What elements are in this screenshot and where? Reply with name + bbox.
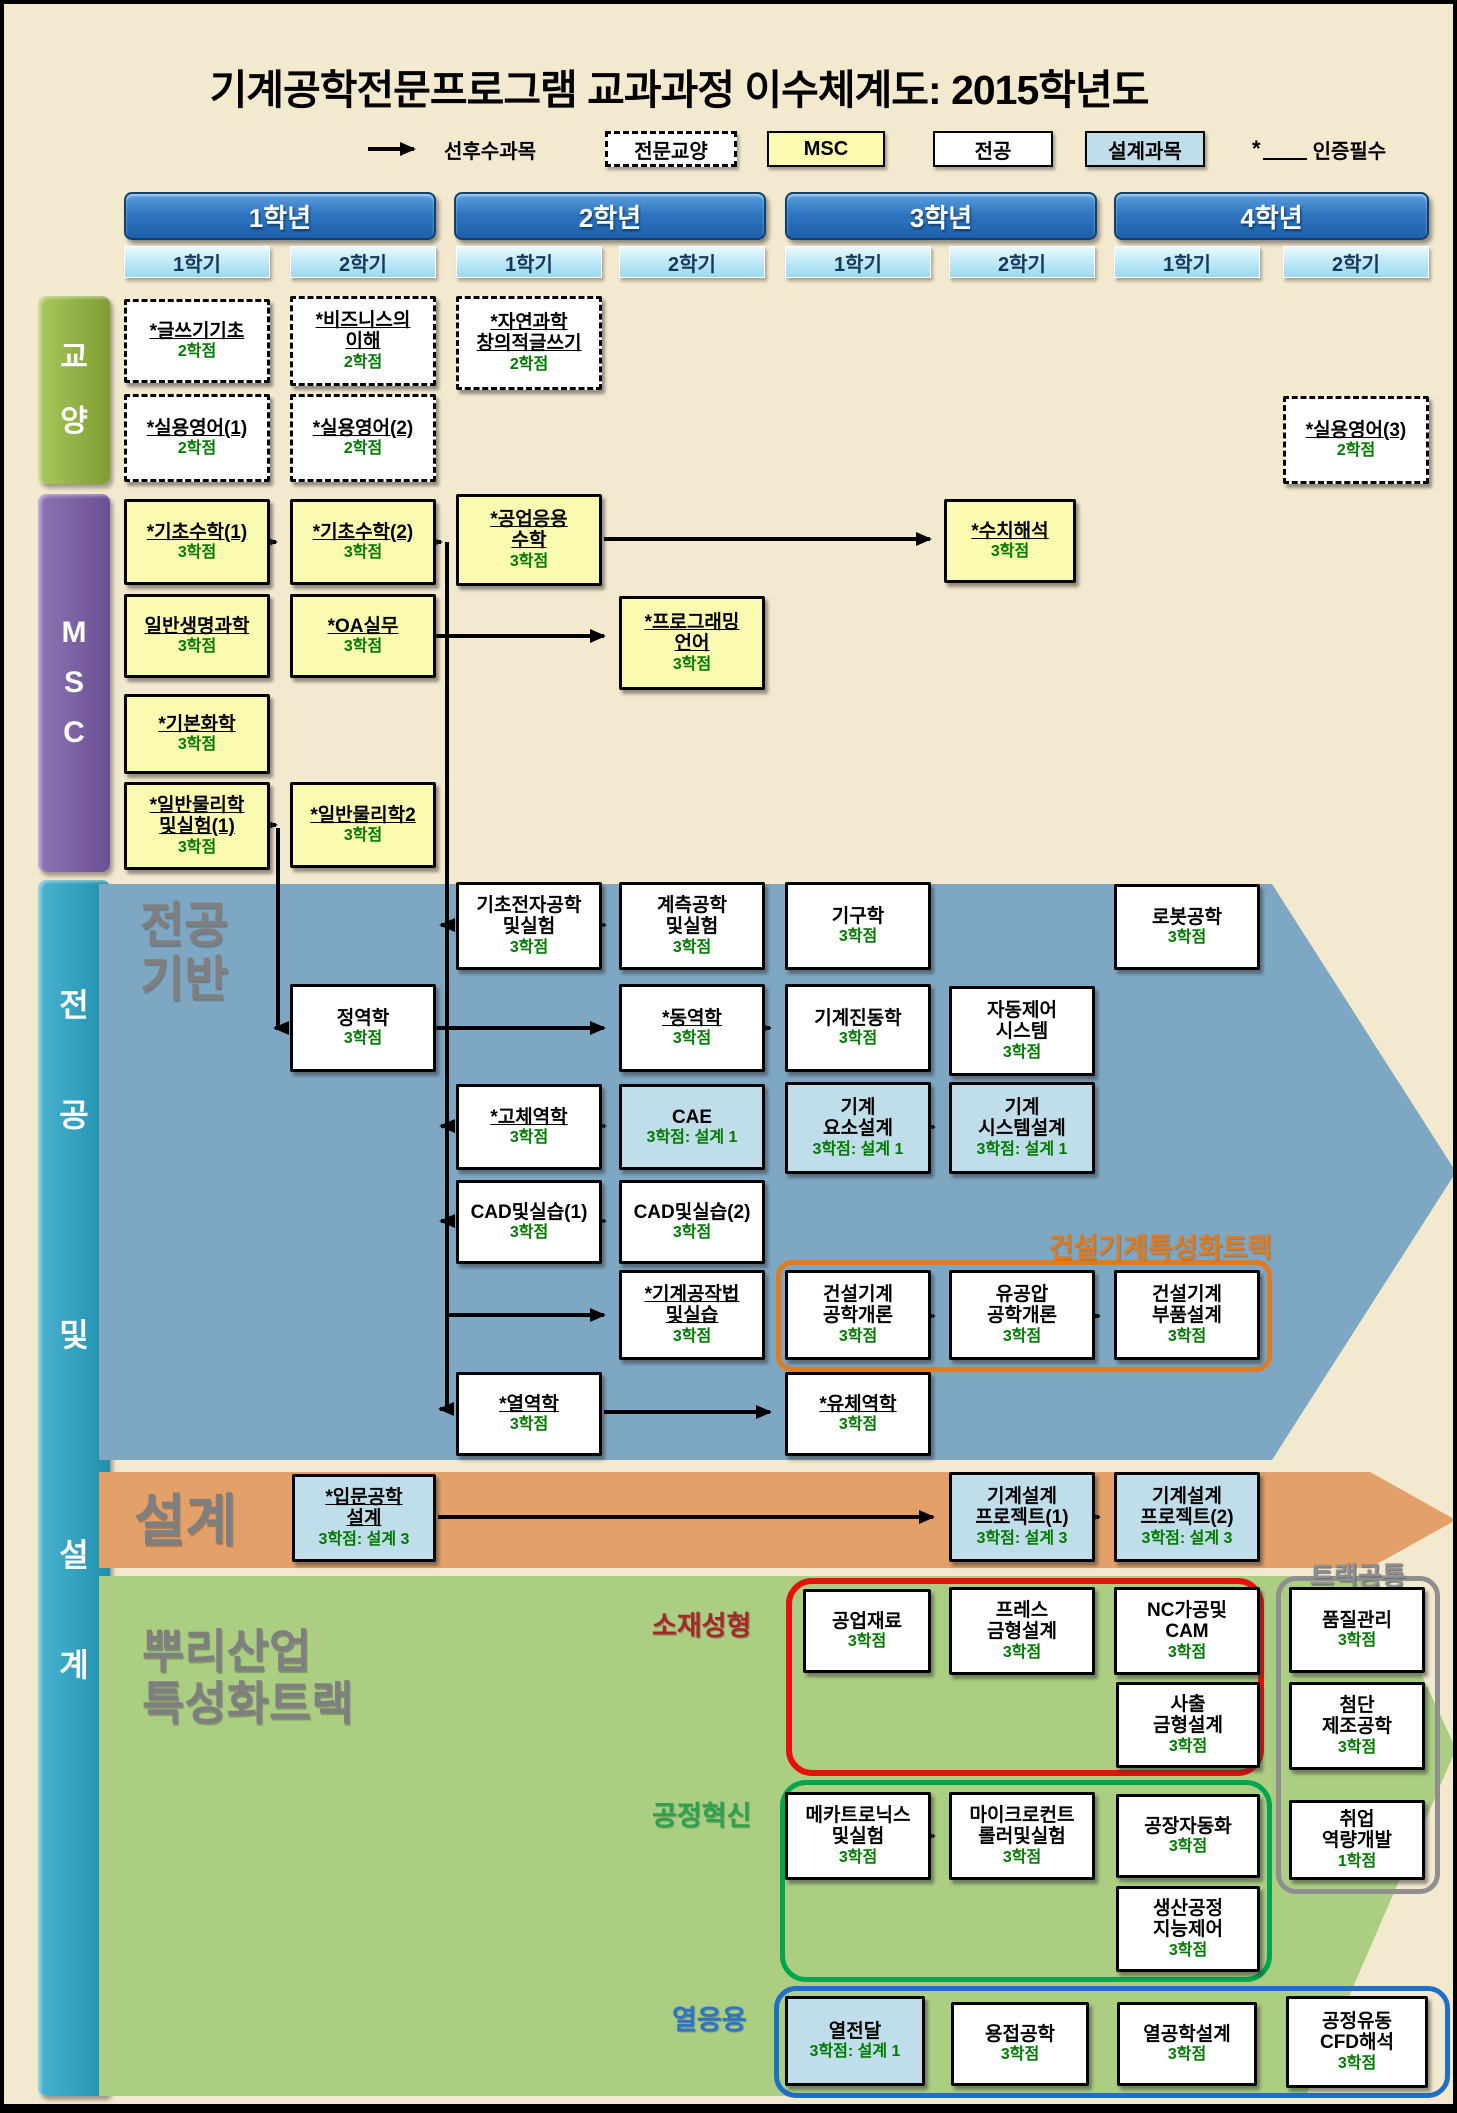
course-box-construction-machinery-parts: 건설기계 부품설계3학점 bbox=[1114, 1270, 1260, 1360]
course-credit: 3학점 bbox=[1003, 1327, 1041, 1346]
course-title: *기계공작법 및실습 bbox=[645, 1284, 740, 1327]
course-box-mechatronics-lab: 메카트로닉스 및실험3학점 bbox=[785, 1792, 931, 1880]
legend-design-course: 설계과목 bbox=[1085, 131, 1205, 167]
year-header-4: 4학년 bbox=[1114, 192, 1429, 240]
course-credit: 3학점: 설계 1 bbox=[813, 1140, 904, 1159]
course-title: 기계설계 프로젝트(2) bbox=[1140, 1486, 1233, 1529]
course-box-robotics: 로봇공학3학점 bbox=[1114, 884, 1260, 970]
course-title: *OA실무 bbox=[328, 616, 399, 637]
semester-header-2-1: 1학기 bbox=[456, 246, 602, 278]
course-credit: 3학점 bbox=[673, 1327, 711, 1346]
course-title: 공장자동화 bbox=[1144, 1816, 1231, 1837]
course-credit: 3학점 bbox=[1168, 928, 1206, 947]
course-credit: 3학점 bbox=[839, 1848, 877, 1867]
year-header-1: 1학년 bbox=[124, 192, 436, 240]
course-title: 취업 역량개발 bbox=[1322, 1809, 1392, 1852]
course-credit: 3학점 bbox=[839, 1029, 877, 1048]
course-title: 기계진동학 bbox=[814, 1008, 901, 1029]
course-title: *자연과학 창의적글쓰기 bbox=[477, 312, 582, 355]
course-box-intro-engineering-design: *입문공학 설계3학점: 설계 3 bbox=[292, 1474, 436, 1562]
course-box-mechanisms: 기구학3학점 bbox=[785, 882, 931, 970]
course-credit: 3학점: 설계 1 bbox=[810, 2042, 901, 2061]
semester-header-3-2: 2학기 bbox=[949, 246, 1095, 278]
legend-required-label: 인증필수 bbox=[1313, 135, 1387, 164]
course-title: CAE bbox=[672, 1107, 712, 1128]
course-title: *유체역학 bbox=[819, 1394, 896, 1415]
course-credit: 2학점 bbox=[178, 342, 216, 361]
course-credit: 3학점 bbox=[848, 1632, 886, 1651]
course-title: 기계 시스템설계 bbox=[978, 1097, 1065, 1140]
course-title: *공업응용 수학 bbox=[490, 509, 567, 552]
underline-icon bbox=[1263, 138, 1307, 160]
course-credit: 3학점 bbox=[178, 735, 216, 754]
course-title: 열공학설계 bbox=[1143, 2024, 1230, 2045]
sidebar-general-education: 교 양 bbox=[38, 296, 110, 484]
course-title: 프레스 금형설계 bbox=[987, 1600, 1057, 1643]
course-title: 공정유동 CFD해석 bbox=[1320, 2011, 1394, 2054]
course-credit: 3학점 bbox=[839, 1415, 877, 1434]
course-box-dynamics: *동역학3학점 bbox=[619, 984, 765, 1072]
course-box-oa-practice: *OA실무3학점 bbox=[290, 594, 436, 678]
course-title: 유공압 공학개론 bbox=[987, 1284, 1057, 1327]
course-title: *열역학 bbox=[499, 1394, 559, 1415]
semester-header-4-1: 1학기 bbox=[1114, 246, 1260, 278]
course-box-heat-transfer: 열전달3학점: 설계 1 bbox=[785, 1996, 925, 2086]
course-title: NC가공및 CAM bbox=[1147, 1600, 1227, 1643]
course-box-cad-practice-2: CAD및실습(2)3학점 bbox=[619, 1180, 765, 1264]
course-box-thermal-engineering-design: 열공학설계3학점 bbox=[1117, 2002, 1257, 2086]
course-box-production-intelligent-control: 생산공정 지능제어3학점 bbox=[1116, 1886, 1260, 1972]
course-credit: 3학점 bbox=[1169, 1837, 1207, 1856]
course-box-machine-element-design: 기계 요소설계3학점: 설계 1 bbox=[785, 1082, 931, 1174]
course-credit: 3학점 bbox=[510, 1415, 548, 1434]
course-title: *일반물리학2 bbox=[310, 805, 415, 826]
page-title: 기계공학전문프로그램 교과과정 이수체계도: 2015학년도 bbox=[64, 56, 1294, 116]
course-box-practical-english-2: *실용영어(2)2학점 bbox=[290, 394, 436, 482]
course-title: *기초수학(2) bbox=[313, 522, 414, 543]
course-box-process-flow-cfd: 공정유동 CFD해석3학점 bbox=[1286, 1996, 1428, 2088]
course-credit: 3학점 bbox=[1168, 1327, 1206, 1346]
course-box-fluid-mechanics: *유체역학3학점 bbox=[785, 1372, 931, 1456]
semester-header-3-1: 1학기 bbox=[785, 246, 931, 278]
course-title: *동역학 bbox=[662, 1008, 722, 1029]
thermal-application-label: 열응용 bbox=[672, 1998, 747, 2037]
course-credit: 3학점 bbox=[673, 938, 711, 957]
course-credit: 3학점 bbox=[1001, 2045, 1039, 2064]
legend-major: 전공 bbox=[933, 131, 1053, 167]
course-box-cae: CAE3학점: 설계 1 bbox=[619, 1084, 765, 1170]
course-credit: 3학점 bbox=[673, 1223, 711, 1242]
course-credit: 3학점 bbox=[344, 637, 382, 656]
course-credit: 3학점 bbox=[1168, 2045, 1206, 2064]
course-title: 첨단 제조공학 bbox=[1322, 1695, 1392, 1738]
course-title: 마이크로컨트 롤러및실험 bbox=[970, 1805, 1075, 1848]
legend-msc: MSC bbox=[767, 131, 885, 167]
course-credit: 3학점: 설계 3 bbox=[319, 1530, 410, 1549]
semester-header-1-1: 1학기 bbox=[124, 246, 270, 278]
course-box-business-understanding: *비즈니스의 이해2학점 bbox=[290, 296, 436, 386]
course-title: 생산공정 지능제어 bbox=[1153, 1898, 1223, 1941]
course-credit: 3학점 bbox=[344, 543, 382, 562]
prerequisite-arrow-icon bbox=[366, 137, 432, 161]
course-title: *기본화학 bbox=[158, 714, 235, 735]
course-title: 품질관리 bbox=[1322, 1610, 1392, 1631]
course-box-statics: 정역학3학점 bbox=[290, 984, 436, 1072]
course-title: 공업재료 bbox=[832, 1611, 902, 1632]
course-title: *입문공학 설계 bbox=[325, 1487, 402, 1530]
course-title: *비즈니스의 이해 bbox=[316, 310, 411, 353]
course-title: *일반물리학 및실험(1) bbox=[150, 795, 245, 838]
course-box-hydraulic-pneumatic-intro: 유공압 공학개론3학점 bbox=[949, 1270, 1095, 1360]
course-credit: 3학점 bbox=[1169, 1737, 1207, 1756]
course-credit: 3학점 bbox=[673, 1029, 711, 1048]
course-credit: 2학점 bbox=[344, 439, 382, 458]
legend-certification-required: * 인증필수 bbox=[1252, 131, 1386, 167]
course-box-numerical-analysis: *수치해석3학점 bbox=[944, 499, 1076, 583]
course-title: *수치해석 bbox=[971, 521, 1048, 542]
course-title: 메카트로닉스 및실험 bbox=[806, 1805, 911, 1848]
material-forming-label: 소재성형 bbox=[652, 1604, 751, 1643]
design-label: 설계 bbox=[134, 1490, 237, 1553]
course-title: 일반생명과학 bbox=[145, 616, 250, 637]
course-credit: 3학점 bbox=[1168, 1643, 1206, 1662]
course-box-injection-mold-design: 사출 금형설계3학점 bbox=[1116, 1682, 1260, 1768]
course-credit: 3학점 bbox=[1338, 1631, 1376, 1650]
course-credit: 3학점 bbox=[1003, 1043, 1041, 1062]
course-title: CAD및실습(2) bbox=[634, 1202, 751, 1223]
course-title: *프로그래밍 언어 bbox=[645, 612, 740, 655]
course-box-mechanical-vibrations: 기계진동학3학점 bbox=[785, 984, 931, 1072]
course-box-solid-mechanics: *고체역학3학점 bbox=[456, 1084, 602, 1170]
course-credit: 3학점 bbox=[839, 1327, 877, 1346]
course-title: *글쓰기기초 bbox=[150, 321, 245, 342]
course-credit: 2학점 bbox=[344, 353, 382, 372]
course-box-automatic-control-systems: 자동제어 시스템3학점 bbox=[949, 986, 1095, 1076]
course-box-practical-english-3: *실용영어(3)2학점 bbox=[1283, 396, 1429, 484]
course-box-programming-language: *프로그래밍 언어3학점 bbox=[619, 596, 765, 690]
course-title: 기계설계 프로젝트(1) bbox=[975, 1486, 1068, 1529]
course-credit: 3학점 bbox=[1338, 1738, 1376, 1757]
course-title: 정역학 bbox=[337, 1008, 389, 1029]
course-title: 기초전자공학 및실험 bbox=[477, 895, 582, 938]
course-credit: 3학점 bbox=[991, 542, 1029, 561]
course-box-basic-math-1: *기초수학(1)3학점 bbox=[124, 499, 270, 585]
year-header-3: 3학년 bbox=[785, 192, 1097, 240]
course-box-nc-machining-cam: NC가공및 CAM3학점 bbox=[1114, 1587, 1260, 1675]
course-box-cad-practice-1: CAD및실습(1)3학점 bbox=[456, 1180, 602, 1264]
course-box-advanced-manufacturing: 첨단 제조공학3학점 bbox=[1289, 1682, 1425, 1770]
root-industry-track-label: 뿌리산업 특성화트랙 bbox=[142, 1626, 354, 1729]
course-title: 기계 요소설계 bbox=[823, 1097, 893, 1140]
course-title: 용접공학 bbox=[985, 2024, 1055, 2045]
course-credit: 3학점: 설계 3 bbox=[1142, 1529, 1233, 1548]
course-credit: 3학점 bbox=[178, 838, 216, 857]
course-credit: 2학점 bbox=[178, 439, 216, 458]
course-box-thermodynamics: *열역학3학점 bbox=[456, 1372, 602, 1456]
course-box-basic-chemistry: *기본화학3학점 bbox=[124, 694, 270, 774]
course-credit: 3학점 bbox=[344, 826, 382, 845]
course-credit: 3학점: 설계 3 bbox=[977, 1529, 1068, 1548]
course-box-general-physics-lab-1: *일반물리학 및실험(1)3학점 bbox=[124, 782, 270, 870]
curriculum-flowchart: 기계공학전문프로그램 교과과정 이수체계도: 2015학년도 선후수과목 전문교… bbox=[0, 0, 1457, 2113]
sidebar-msc-label: M S C bbox=[62, 608, 87, 758]
legend-prerequisite-label: 선후수과목 bbox=[444, 131, 536, 167]
course-title: CAD및실습(1) bbox=[471, 1202, 588, 1223]
course-box-practical-english-1: *실용영어(1)2학점 bbox=[124, 394, 270, 482]
course-title: *고체역학 bbox=[490, 1107, 567, 1128]
major-foundation-label: 전공 기반 bbox=[140, 899, 228, 1007]
course-credit: 3학점 bbox=[510, 1128, 548, 1147]
course-box-general-physics-2: *일반물리학23학점 bbox=[290, 782, 436, 868]
course-box-writing-basics: *글쓰기기초2학점 bbox=[124, 299, 270, 383]
sidebar-msc: M S C bbox=[38, 494, 110, 872]
asterisk-icon: * bbox=[1252, 136, 1261, 162]
course-box-career-development: 취업 역량개발1학점 bbox=[1289, 1800, 1425, 1880]
course-credit: 3학점 bbox=[673, 655, 711, 674]
course-credit: 1학점 bbox=[1338, 1852, 1376, 1871]
construction-machinery-track-label: 건설기계특성화트랙 bbox=[932, 1226, 1272, 1265]
course-credit: 3학점: 설계 1 bbox=[977, 1140, 1068, 1159]
course-title: 사출 금형설계 bbox=[1153, 1694, 1223, 1737]
course-title: *실용영어(1) bbox=[147, 418, 248, 439]
course-box-microcontroller-lab: 마이크로컨트 롤러및실험3학점 bbox=[949, 1792, 1095, 1880]
course-credit: 3학점 bbox=[510, 938, 548, 957]
course-credit: 3학점 bbox=[178, 543, 216, 562]
course-credit: 3학점 bbox=[1338, 2054, 1376, 2073]
course-credit: 3학점: 설계 1 bbox=[647, 1128, 738, 1147]
course-box-science-creative-writing: *자연과학 창의적글쓰기2학점 bbox=[456, 296, 602, 390]
course-title: 계측공학 및실험 bbox=[657, 895, 727, 938]
course-credit: 3학점 bbox=[1003, 1848, 1041, 1867]
course-title: 로봇공학 bbox=[1152, 907, 1222, 928]
sidebar-major-and-design-label: 전 공 및 설 계 bbox=[59, 950, 88, 1720]
semester-header-4-2: 2학기 bbox=[1283, 246, 1429, 278]
course-credit: 3학점 bbox=[1169, 1941, 1207, 1960]
course-box-engineering-applied-math: *공업응용 수학3학점 bbox=[456, 494, 602, 586]
course-credit: 3학점 bbox=[510, 1223, 548, 1242]
course-box-machine-system-design: 기계 시스템설계3학점: 설계 1 bbox=[949, 1082, 1095, 1174]
course-credit: 3학점 bbox=[344, 1029, 382, 1048]
course-credit: 3학점 bbox=[1003, 1643, 1041, 1662]
semester-header-2-2: 2학기 bbox=[619, 246, 765, 278]
course-box-instrumentation-lab: 계측공학 및실험3학점 bbox=[619, 882, 765, 970]
semester-header-1-2: 2학기 bbox=[290, 246, 436, 278]
course-credit: 3학점 bbox=[510, 552, 548, 571]
course-title: 자동제어 시스템 bbox=[987, 1000, 1057, 1043]
course-box-machine-design-project-2: 기계설계 프로젝트(2)3학점: 설계 3 bbox=[1114, 1472, 1260, 1562]
course-credit: 2학점 bbox=[510, 355, 548, 374]
course-box-basic-electronics-lab: 기초전자공학 및실험3학점 bbox=[456, 882, 602, 970]
course-box-welding-engineering: 용접공학3학점 bbox=[951, 2002, 1089, 2086]
course-credit: 3학점 bbox=[178, 637, 216, 656]
course-box-machining-practice: *기계공작법 및실습3학점 bbox=[619, 1270, 765, 1360]
course-title: 열전달 bbox=[829, 2021, 881, 2042]
course-title: *기초수학(1) bbox=[147, 522, 248, 543]
course-box-basic-math-2: *기초수학(2)3학점 bbox=[290, 499, 436, 585]
course-box-machine-design-project-1: 기계설계 프로젝트(1)3학점: 설계 3 bbox=[949, 1472, 1095, 1562]
course-box-general-life-science: 일반생명과학3학점 bbox=[124, 594, 270, 678]
course-title: 기구학 bbox=[832, 906, 884, 927]
course-credit: 2학점 bbox=[1337, 441, 1375, 460]
course-title: 건설기계 부품설계 bbox=[1152, 1284, 1222, 1327]
course-box-engineering-materials: 공업재료3학점 bbox=[803, 1589, 931, 1673]
course-title: 건설기계 공학개론 bbox=[823, 1284, 893, 1327]
course-box-press-die-design: 프레스 금형설계3학점 bbox=[949, 1587, 1095, 1675]
course-title: *실용영어(3) bbox=[1306, 420, 1407, 441]
course-box-factory-automation: 공장자동화3학점 bbox=[1116, 1794, 1260, 1878]
process-innovation-label: 공정혁신 bbox=[652, 1794, 751, 1833]
sidebar-general-education-label: 교 양 bbox=[60, 326, 88, 454]
course-credit: 3학점 bbox=[839, 927, 877, 946]
year-header-2: 2학년 bbox=[454, 192, 766, 240]
course-box-quality-control: 품질관리3학점 bbox=[1289, 1587, 1425, 1673]
course-box-construction-machinery-intro: 건설기계 공학개론3학점 bbox=[785, 1270, 931, 1360]
legend-general-education: 전문교양 bbox=[605, 131, 737, 167]
course-title: *실용영어(2) bbox=[313, 418, 414, 439]
